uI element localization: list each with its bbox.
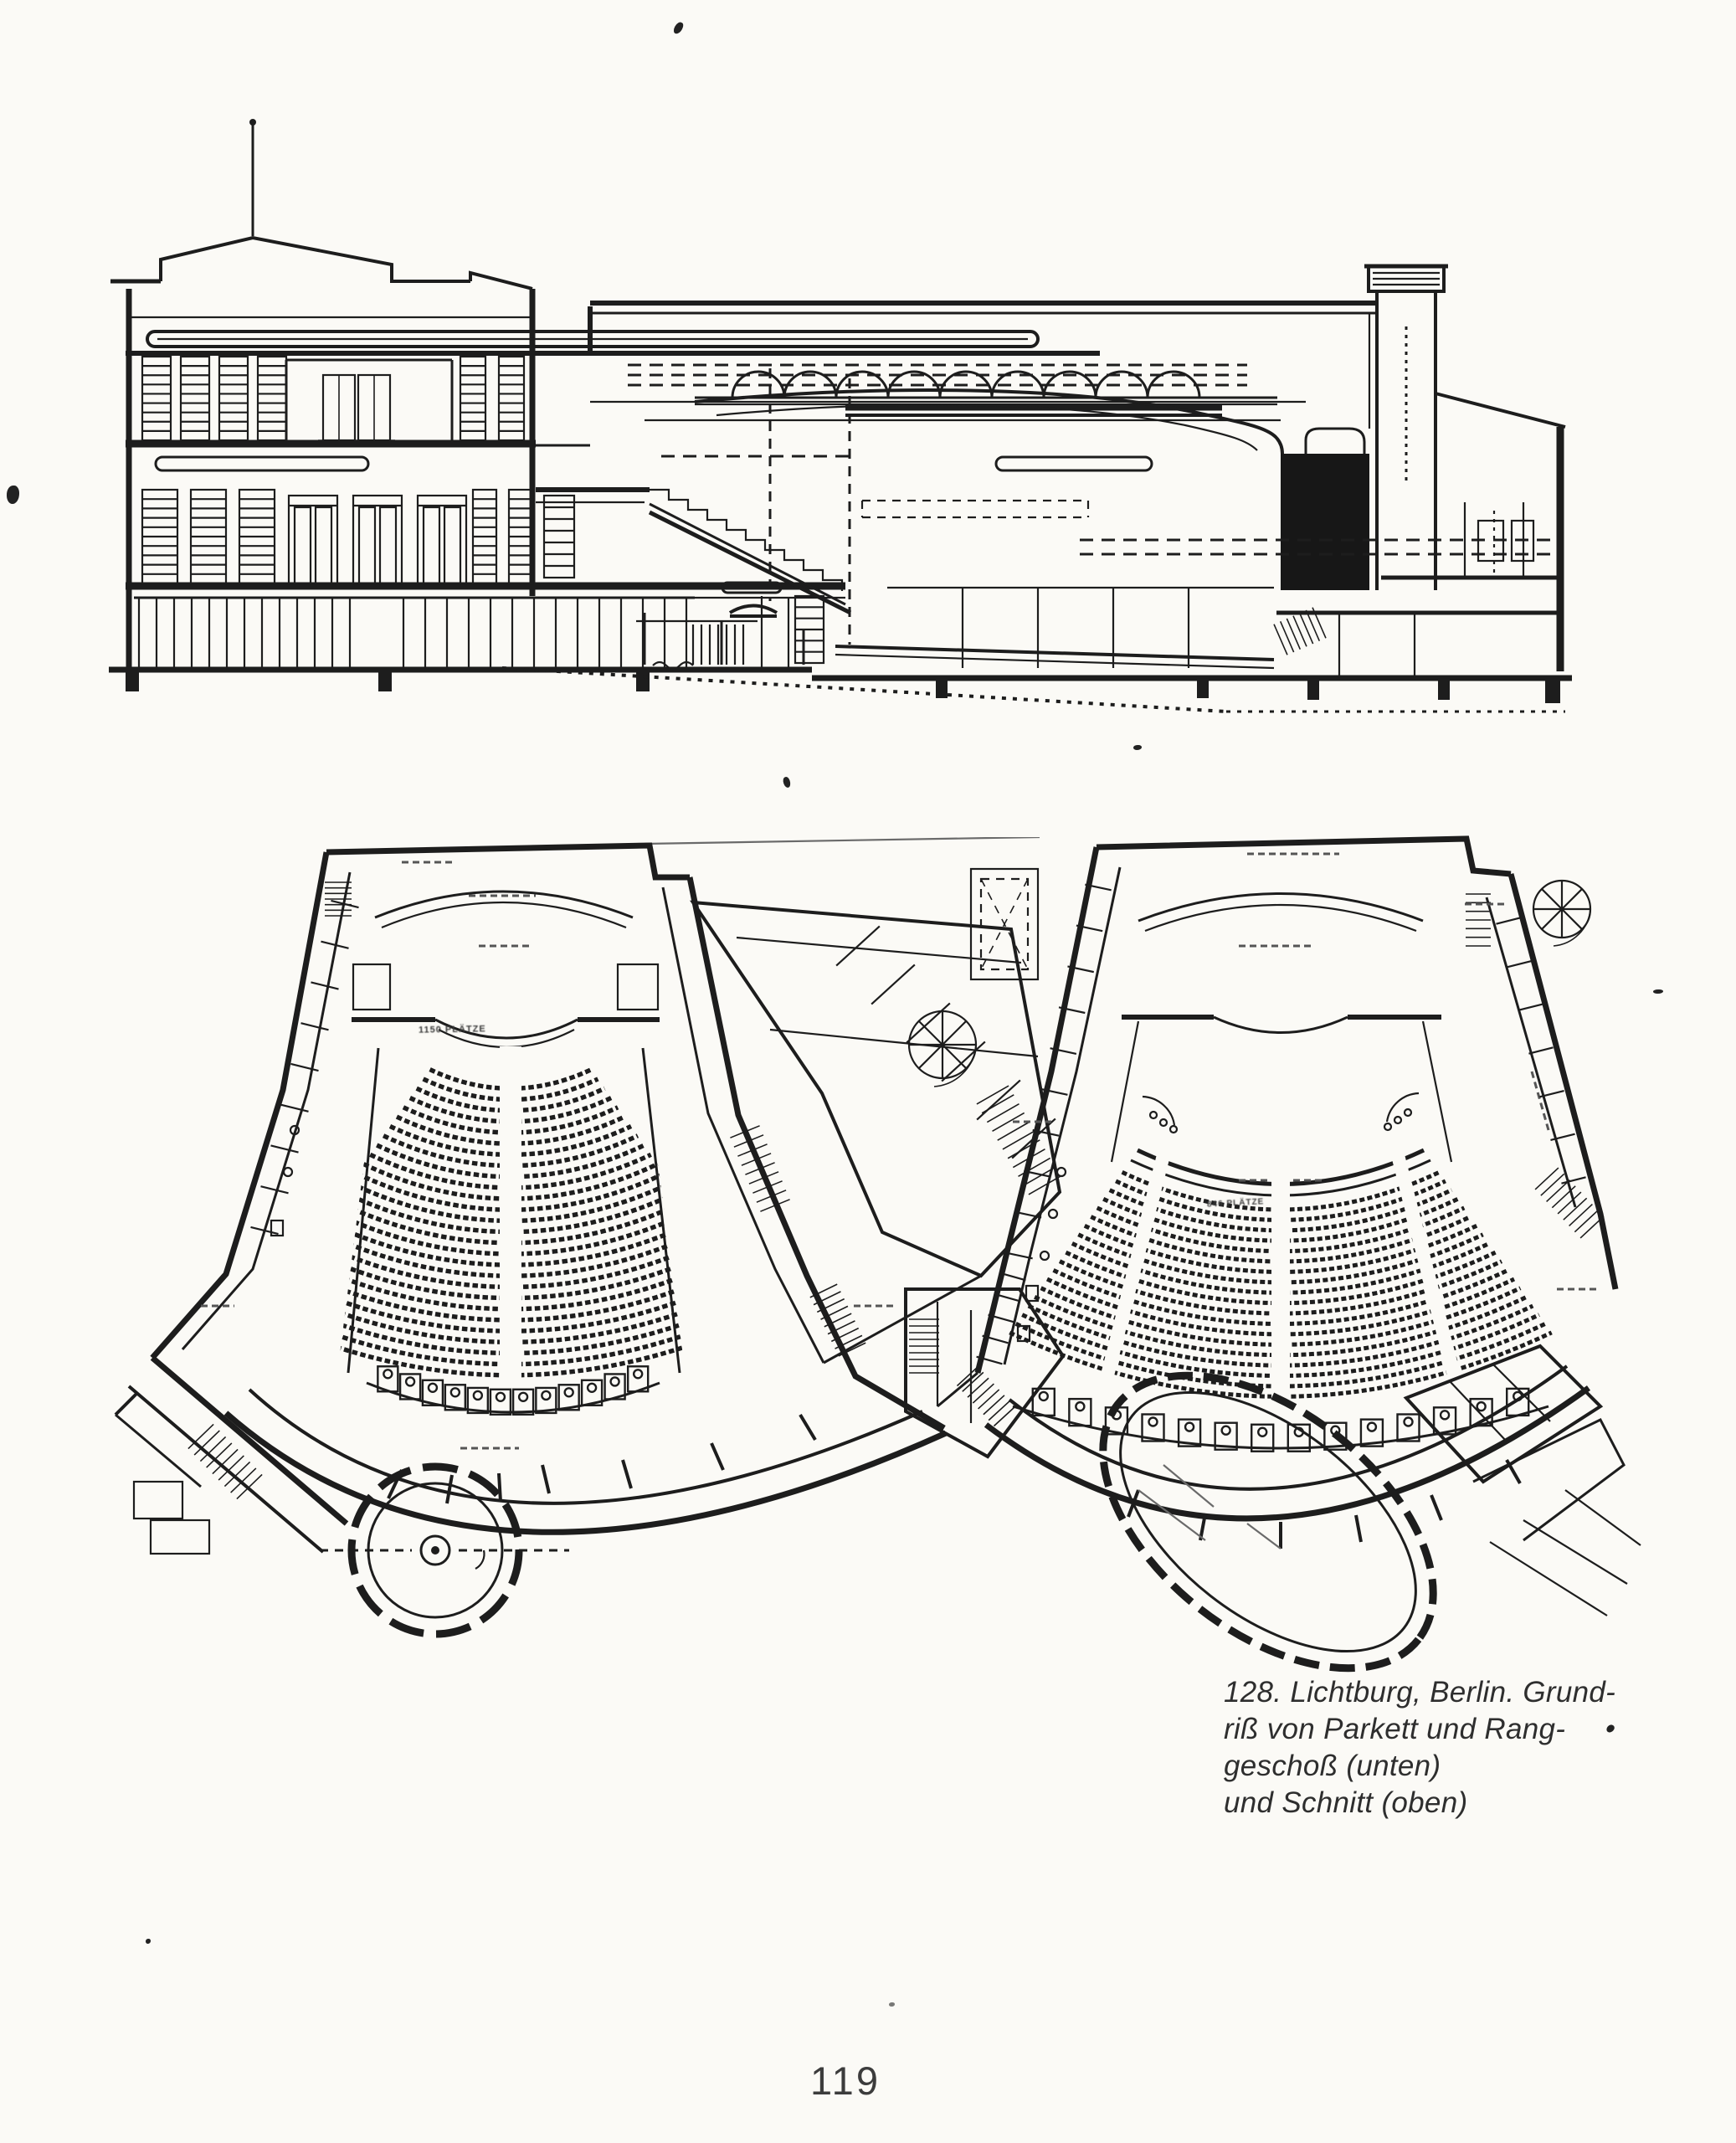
stairs-hatch — [909, 894, 1604, 1426]
figure-caption: 128. Lichtburg, Berlin. Grund- riß von P… — [1224, 1674, 1676, 1822]
foundation-piers — [126, 670, 1560, 703]
scan-speck — [1133, 745, 1142, 750]
scan-speck — [146, 1939, 151, 1944]
parkett-seat-count-label: 1150 PLÄTZE — [419, 1024, 486, 1035]
scan-speck — [782, 776, 792, 789]
entrance-doors — [289, 496, 466, 583]
section-drawing — [109, 109, 1582, 728]
scan-speck — [672, 21, 685, 35]
storefront-mullions — [139, 598, 686, 668]
side-boxes — [1143, 1093, 1419, 1133]
caption-line: geschoß (unten) — [1224, 1748, 1676, 1785]
scan-speck — [889, 2002, 895, 2007]
stage-area — [352, 892, 660, 1047]
book-page: 1150 PLÄTZE 846 PLÄTZE 128. Lichtburg, B… — [0, 0, 1736, 2143]
spiral-stair — [1533, 881, 1590, 946]
floor-plan-rang — [887, 820, 1674, 1724]
caption-line: und Schnitt (oben) — [1224, 1785, 1676, 1822]
scan-speck — [7, 486, 19, 504]
page-number: 119 — [753, 2058, 937, 2104]
caption-line: 128. Lichtburg, Berlin. Grund- — [1224, 1674, 1676, 1711]
stage-area — [971, 854, 1441, 1033]
